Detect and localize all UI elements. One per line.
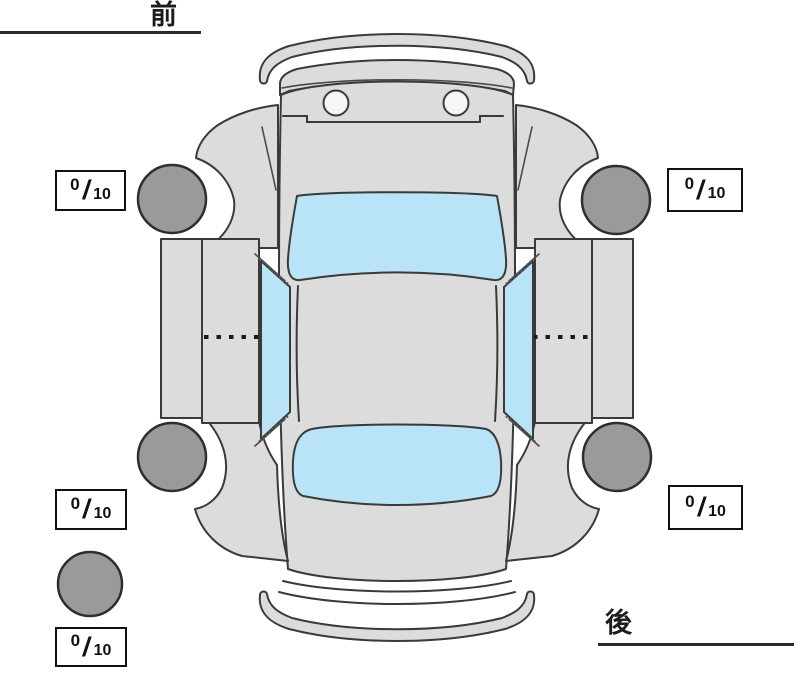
rear-fender-left — [195, 419, 288, 561]
tread-max: 10 — [708, 503, 726, 521]
front-label: 前 — [150, 2, 177, 29]
tread-gauge-rear-left: 0 / 10 — [55, 489, 127, 530]
rear-label-text: 後 — [605, 608, 632, 638]
side-window-right — [504, 261, 533, 439]
tread-separator: / — [695, 177, 706, 204]
tread-separator: / — [81, 177, 92, 204]
tread-separator: / — [696, 494, 707, 521]
tread-max: 10 — [94, 642, 112, 660]
tread-value: 0 — [685, 174, 694, 194]
tread-max: 10 — [94, 505, 112, 523]
rocker-panel-left — [161, 239, 202, 418]
rear-fender-right — [506, 419, 599, 561]
tread-value: 0 — [685, 492, 694, 512]
hood-circle-left — [324, 91, 349, 116]
rear-label: 後 — [605, 610, 632, 637]
tread-value: 0 — [71, 494, 80, 514]
hood-circle-right — [444, 91, 469, 116]
trunk-lid-line-2 — [279, 592, 515, 604]
tread-gauge-front-left: 0 / 10 — [55, 170, 126, 211]
door-panel-left — [202, 239, 259, 423]
rear-bumper — [260, 591, 534, 641]
wheel-front-right — [582, 166, 650, 234]
car-top-view — [0, 0, 800, 675]
side-window-left — [261, 261, 290, 439]
wheel-front-left — [138, 165, 206, 233]
tread-value: 0 — [71, 631, 80, 651]
front-label-text: 前 — [150, 0, 177, 30]
tread-value: 0 — [70, 175, 79, 195]
front-fender-right — [516, 105, 598, 248]
wheel-rear-right — [583, 423, 651, 491]
rear-rule — [598, 643, 794, 646]
tread-max: 10 — [93, 186, 111, 204]
door-panel-right — [535, 239, 592, 423]
tread-separator: / — [81, 496, 92, 523]
rocker-panel-right — [592, 239, 633, 418]
spare-tire — [58, 552, 122, 616]
trunk-lid-line-1 — [283, 581, 511, 592]
tread-gauge-rear-right: 0 / 10 — [668, 485, 743, 530]
tread-separator: / — [81, 634, 92, 661]
tread-max: 10 — [708, 185, 726, 203]
vehicle-inspection-diagram: 前 後 0 / 10 0 / 10 0 / 10 0 / 10 0 / 10 — [0, 0, 800, 675]
wheel-rear-left — [138, 423, 206, 491]
rear-window — [293, 425, 501, 506]
front-rule — [0, 31, 201, 34]
windshield — [288, 192, 506, 280]
tread-gauge-front-right: 0 / 10 — [667, 168, 743, 212]
body-shell — [279, 82, 515, 582]
front-fender-left — [196, 105, 278, 248]
tread-gauge-spare: 0 / 10 — [55, 627, 127, 667]
